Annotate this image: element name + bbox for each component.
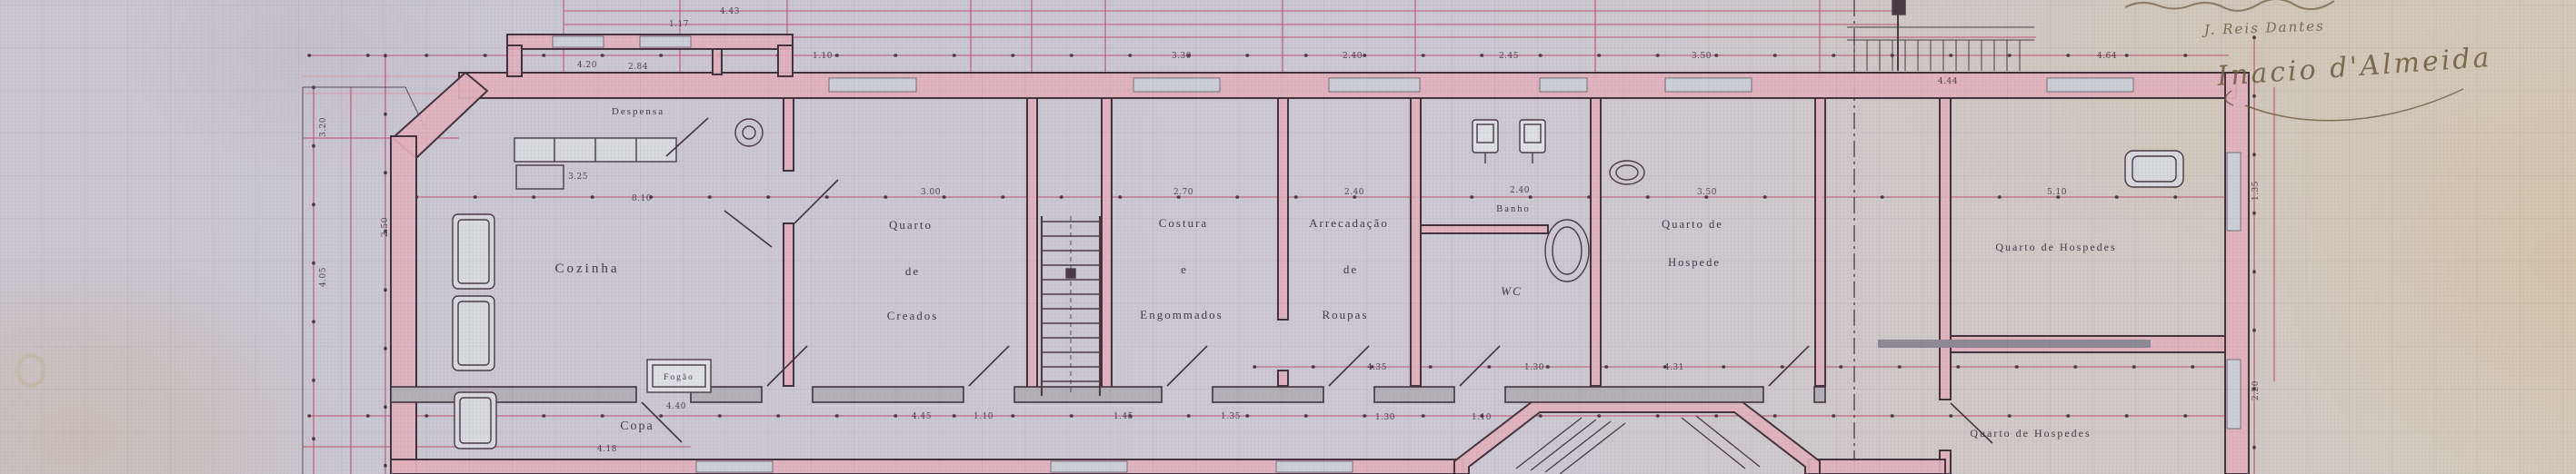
dimension-label: 4.45: [912, 412, 932, 421]
dimension-label: 5.10: [2047, 188, 2067, 197]
dimension-label: 3.25: [568, 173, 588, 182]
dimension-label: 4.35: [1367, 363, 1387, 372]
dimension-label: 2.45: [1499, 52, 1519, 61]
label-wc: WC: [1501, 284, 1523, 298]
label-quarto-creados-2: de: [905, 264, 920, 278]
dimension-label: 1.10: [973, 412, 993, 421]
label-arrecadacao-1: Arrecadação: [1309, 216, 1389, 230]
label-fogao: Fogão: [664, 373, 694, 382]
flag-mast-icon: [1892, 0, 1905, 71]
label-quarto-creados-1: Quarto: [889, 218, 933, 232]
stair: [1042, 216, 1100, 396]
dimension-label: 8.10: [632, 194, 652, 203]
guest-room-furniture: [2125, 151, 2183, 187]
dimension-label: 4.40: [666, 402, 686, 411]
partition: [784, 98, 794, 171]
dimension-label: 2.40: [1344, 188, 1364, 197]
windows: [553, 36, 2241, 472]
dimension-label: 2.84: [628, 63, 648, 72]
label-costura-3: Engommados: [1140, 308, 1223, 321]
dimension-label: 3.50: [1697, 188, 1717, 197]
bay-steps: [1516, 416, 1760, 474]
dimension-label: 3.30: [1172, 52, 1192, 61]
hall-rail: [1878, 340, 2151, 348]
entrance-porch: [1847, 27, 2034, 71]
bay-window-wall: [1454, 401, 1820, 474]
dimension-label: 1.35: [2252, 181, 2261, 201]
label-copa: Copa: [620, 420, 654, 433]
dimension-label: 3.50: [1692, 52, 1712, 61]
corridor-wall: [391, 387, 1825, 402]
label-cozinha: Cozinha: [555, 262, 620, 276]
kitchen-counter: [514, 138, 676, 189]
dimension-label: 1.17: [669, 20, 689, 29]
dimension-label: 4.44: [1938, 77, 1958, 86]
label-arrecadacao-2: de: [1343, 262, 1358, 276]
handwriting-line: J. Reis Dantes: [2202, 17, 2326, 38]
signature: Inacio d'Almeida: [2215, 42, 2492, 93]
handwriting: J. Reis Dantes Inacio d'Almeida: [2125, 0, 2492, 121]
dimension-label: 1.45: [1113, 412, 1133, 421]
dimension-label: 2.20: [2252, 380, 2261, 400]
handwriting-scribble: [2125, 0, 2334, 11]
dimension-label: 1.35: [1221, 412, 1241, 421]
label-costura-1: Costura: [1159, 216, 1208, 230]
label-banho: Banho: [1496, 204, 1530, 214]
label-quarto-hospede-1: Quarto de: [1662, 218, 1723, 231]
dimension-label: 4.05: [319, 267, 328, 287]
boiler-icon: [735, 119, 763, 146]
dimension-label: 4.31: [1664, 363, 1684, 372]
label-quarto-hospedes-top: Quarto de Hospedes: [1995, 241, 2116, 253]
dimension-label: 1.10: [813, 52, 833, 61]
dimension-label: 1.30: [1375, 413, 1395, 422]
dimension-label: 2.40: [1343, 52, 1363, 61]
dimension-label: 2.40: [1510, 186, 1530, 195]
dimension-label: 4.18: [597, 445, 617, 454]
signature-flourish: [2225, 89, 2463, 121]
dimension-label: 4.20: [577, 61, 597, 70]
label-quarto-creados-3: Creados: [887, 309, 939, 322]
left-wall-cupboards: [453, 214, 496, 449]
dimension-label: 1.10: [1472, 413, 1492, 422]
dimension-label: 2.50: [381, 217, 390, 237]
label-quarto-hospede-2: Hospede: [1668, 256, 1721, 269]
dimension-label: 3.00: [921, 188, 941, 197]
window: [829, 78, 916, 92]
label-despensa: Despensa: [612, 106, 664, 117]
toilet-icon: [1610, 161, 1644, 184]
dimension-label: 1.30: [1524, 363, 1544, 372]
label-quarto-hospedes-bottom: Quarto de Hospedes: [1970, 427, 2091, 439]
label-arrecadacao-3: Roupas: [1323, 308, 1369, 321]
left-exterior-wall: [391, 136, 416, 474]
bath-sinks: [1473, 120, 1545, 163]
floorplan-scan: { "document": { "kind": "scanned archite…: [0, 0, 2576, 474]
floorplan-drawing: Despensa Cozinha Fogão Copa Quarto de Cr…: [0, 0, 2576, 474]
label-costura-2: e: [1181, 262, 1188, 276]
dimension-label: 4.64: [2097, 52, 2117, 61]
banho-wc-partition: [1421, 225, 1548, 233]
dimension-label: 2.70: [1173, 188, 1193, 197]
bathtub-icon: [1545, 220, 1589, 281]
dimension-label: 4.43: [720, 7, 740, 16]
dimension-label: 3.20: [319, 117, 328, 137]
